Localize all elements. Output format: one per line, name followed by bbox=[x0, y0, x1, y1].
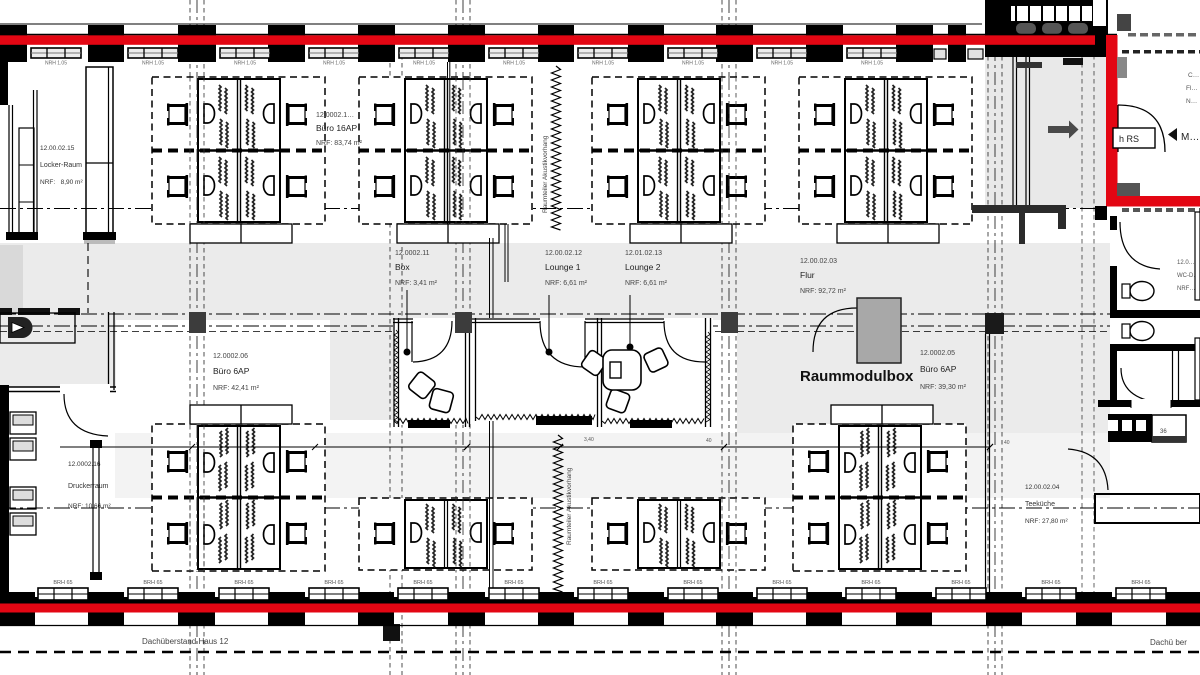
svg-text:Dachü ber: Dachü ber bbox=[1150, 638, 1187, 647]
svg-text:NRF: 8,90 m²: NRF: 8,90 m² bbox=[40, 179, 83, 186]
svg-text:Raumteiler Akustikvorhang: Raumteiler Akustikvorhang bbox=[542, 135, 549, 213]
svg-text:NRF: 39,30 m²: NRF: 39,30 m² bbox=[920, 384, 967, 391]
svg-text:C…: C… bbox=[1188, 72, 1199, 79]
svg-text:Lounge 2: Lounge 2 bbox=[625, 262, 661, 272]
svg-text:NRF…: NRF… bbox=[1177, 286, 1195, 292]
svg-text:12.00.02.15: 12.00.02.15 bbox=[40, 145, 75, 152]
svg-text:Büro 6AP: Büro 6AP bbox=[213, 366, 250, 376]
svg-text:NRF: 6,61 m²: NRF: 6,61 m² bbox=[625, 280, 668, 287]
svg-text:40: 40 bbox=[706, 438, 712, 444]
svg-text:12.00.02.04: 12.00.02.04 bbox=[1025, 484, 1060, 491]
svg-text:Druckerraum: Druckerraum bbox=[68, 483, 109, 490]
svg-text:NRF: 27,80 m²: NRF: 27,80 m² bbox=[1025, 518, 1068, 525]
svg-text:NRF: 42,41 m²: NRF: 42,41 m² bbox=[213, 385, 260, 392]
svg-text:NRF: 83,74 m²: NRF: 83,74 m² bbox=[316, 140, 363, 147]
svg-text:Büro 6AP: Büro 6AP bbox=[920, 364, 957, 374]
svg-text:Fl…: Fl… bbox=[1186, 85, 1198, 92]
svg-text:36: 36 bbox=[1160, 429, 1167, 435]
svg-text:Locker-Raum: Locker-Raum bbox=[40, 162, 82, 169]
svg-text:Raumteiler Akustikvorhang: Raumteiler Akustikvorhang bbox=[566, 467, 573, 545]
svg-text:NRF: 3,41 m²: NRF: 3,41 m² bbox=[395, 280, 438, 287]
svg-text:12.0002.1…: 12.0002.1… bbox=[316, 112, 354, 119]
svg-text:12.0002.06: 12.0002.06 bbox=[213, 353, 248, 360]
svg-text:N…: N… bbox=[1186, 98, 1197, 105]
svg-text:12.0002.16: 12.0002.16 bbox=[68, 461, 101, 468]
svg-text:12.01.02.13: 12.01.02.13 bbox=[625, 250, 662, 257]
svg-text:NRF: 10,66 m²: NRF: 10,66 m² bbox=[68, 503, 111, 510]
svg-text:Raummodulbox: Raummodulbox bbox=[800, 368, 914, 385]
svg-text:M…: M… bbox=[1181, 132, 1199, 143]
svg-text:12.0…: 12.0… bbox=[1177, 260, 1195, 266]
svg-text:Lounge 1: Lounge 1 bbox=[545, 262, 581, 272]
svg-text:Büro 16AP: Büro 16AP bbox=[316, 123, 357, 133]
svg-text:3,40: 3,40 bbox=[584, 437, 594, 443]
svg-text:Box: Box bbox=[395, 262, 410, 272]
svg-text:12.0002.11: 12.0002.11 bbox=[395, 250, 430, 257]
svg-text:NRF: 6,61 m²: NRF: 6,61 m² bbox=[545, 280, 588, 287]
svg-text:12.00.02.12: 12.00.02.12 bbox=[545, 250, 582, 257]
svg-text:Dachüberstand Haus 12: Dachüberstand Haus 12 bbox=[142, 637, 229, 646]
svg-text:40: 40 bbox=[1004, 440, 1010, 446]
svg-text:Flur: Flur bbox=[800, 270, 815, 280]
svg-text:NRF: 92,72 m²: NRF: 92,72 m² bbox=[800, 288, 847, 295]
svg-text:12.00.02.03: 12.00.02.03 bbox=[800, 258, 837, 265]
svg-text:Teeküche: Teeküche bbox=[1025, 501, 1055, 508]
svg-text:h RS: h RS bbox=[1119, 134, 1139, 144]
svg-text:12.0002.05: 12.0002.05 bbox=[920, 350, 955, 357]
